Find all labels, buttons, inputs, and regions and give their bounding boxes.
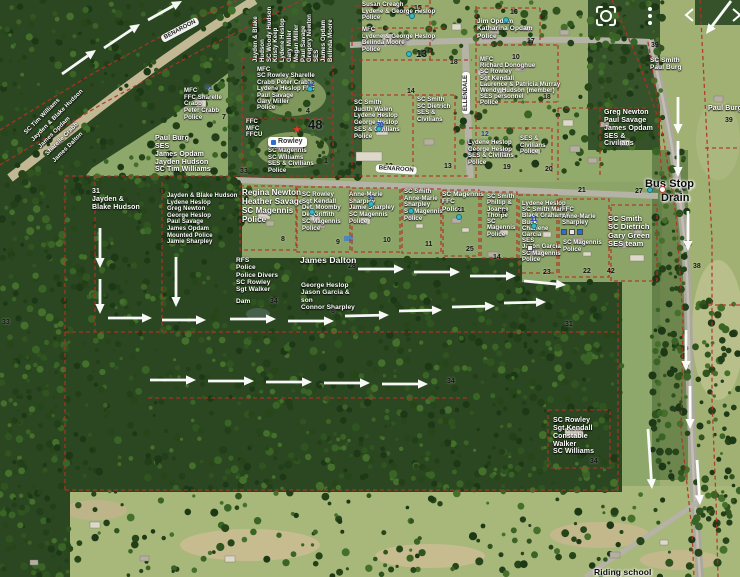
poi-dot (503, 17, 509, 23)
road-label: BENAROON (375, 164, 416, 175)
lot-number: 33 (240, 168, 248, 175)
map-label: Regina Newton Heather Savage SC Magennis… (242, 189, 303, 225)
lot-number: 39 (725, 117, 733, 124)
map-label: SC Smith Anne-Marie Sharpley SC Magennis… (404, 189, 443, 223)
lot-number: 28 (348, 263, 356, 270)
map-icon-square (577, 229, 583, 235)
road-label: BENAROON (160, 17, 200, 43)
poi-dot (408, 208, 414, 214)
lot-number: 12 (481, 131, 489, 138)
lot-number: 15 (414, 5, 422, 12)
lot-number: 48 (308, 117, 322, 132)
lot-number: 4 (306, 108, 310, 115)
map-label: Jayden & Blake Hudson SC Woody Hudson Kr… (253, 7, 335, 62)
lot-number: 39 (651, 42, 659, 49)
lot-number: 22 (583, 268, 591, 275)
map-label: SC Rowley Sgt Kendall Constable Walker S… (553, 417, 594, 456)
lot-number: 38 (693, 263, 701, 270)
map-screenshot[interactable]: SC Tim Williams Jayden & Blake Hudson Ja… (0, 0, 740, 577)
map-icon-square (569, 229, 575, 235)
highlight-chip: Rowley (268, 137, 307, 147)
map-label: SC Smith Judith Walen Lydene Heslop Geor… (354, 100, 400, 140)
poi-dot (307, 86, 313, 92)
road-label: ELLENDALE (462, 72, 470, 114)
lot-number: 1 (324, 158, 328, 165)
map-label: FFC MFC FFCU (246, 119, 262, 139)
star-marker: ★ (292, 125, 302, 136)
lot-number: 11 (425, 241, 432, 248)
map-label: SC Smith SC Dietrich Gary Green SES team (608, 215, 650, 249)
poi-dot (409, 13, 415, 19)
lot-number: 18 (450, 59, 458, 66)
map-label: Greg Newton Paul Savage James Opdam SES … (604, 109, 653, 148)
lot-number: 51 (205, 85, 213, 92)
more-options-icon[interactable] (642, 6, 658, 26)
bracket-left-icon[interactable] (684, 8, 696, 22)
lot-number: 34 (270, 298, 278, 305)
bus-stop-marker (659, 186, 666, 193)
lot-number: 27 (635, 188, 643, 195)
map-label: Jayden & Blake Hudson Lydene Heslop Greg… (167, 193, 237, 246)
poi-dot (376, 126, 382, 132)
lot-number: 21 (578, 187, 586, 194)
lot-number: 6 (331, 308, 335, 315)
map-label: Paul Burg SES James Opdam Jayden Hudson … (155, 135, 211, 174)
annotations-layer: SC Tim Williams Jayden & Blake Hudson Ja… (0, 0, 740, 577)
lot-number: 9 (336, 239, 340, 246)
lot-number: 18 (543, 94, 551, 101)
map-label: Lydene Heslop George Heslop SES & Civili… (468, 140, 514, 167)
lot-number: 13 (444, 163, 452, 170)
map-label: George Heslop Jason Garcia & son Connor … (301, 282, 355, 311)
poi-dot (368, 201, 374, 207)
lot-number: 17 (527, 38, 535, 45)
poi-dot (309, 209, 315, 215)
map-label: SC Smith SC Dietrich SES & Civilians (417, 97, 450, 124)
map-label: FFC Anne-Marie Sharpley (562, 207, 596, 227)
lot-number: 34 (590, 458, 598, 465)
lot-number: 19 (499, 209, 507, 216)
map-label: Dam (236, 298, 250, 305)
poi-dot (531, 223, 537, 229)
map-label: Drain (661, 192, 690, 204)
lot-number: 16 (510, 9, 518, 16)
lot-number: 20 (545, 166, 553, 173)
lot-number: 19 (503, 164, 511, 171)
lot-number: 10 (383, 237, 391, 244)
poi-dot (406, 51, 412, 57)
lot-number: 14 (493, 254, 501, 261)
map-icon-square (527, 245, 533, 251)
map-label: SC Smith Paul Burg (650, 57, 682, 72)
lot-number: 25 (466, 246, 474, 253)
map-label: SC Rowley Sgt Kendall Det. Moomby Det Gr… (302, 192, 341, 232)
lot-number: 31 (565, 321, 573, 328)
screenshot-lens-icon[interactable] (594, 4, 618, 28)
map-label: Susan Creagh Lydene & George Heslop Poli… (362, 2, 435, 22)
map-label: 31 Jayden & Blake Hudson (92, 188, 140, 212)
lot-number: 23 (543, 269, 551, 276)
lot-number: 21 (457, 207, 465, 214)
poi-dot (647, 187, 653, 193)
map-label: MFC FFC Sharelle Crabb Peter Crabb Polic… (184, 88, 222, 122)
map-label: SC Smith Phillip & Joanne Thorpe SC Mage… (487, 194, 515, 238)
map-label: SES & Civilians Police (520, 136, 546, 156)
lot-number: 42 (607, 268, 615, 275)
lot-number: 11 (530, 216, 537, 223)
map-label: SC Magennis Police (563, 240, 602, 253)
map-label: RFS Police Police Divers SC Rowley Sgt W… (236, 257, 278, 293)
map-label: Paul Burg (708, 105, 740, 113)
lot-number: 34 (447, 378, 455, 385)
map-icon-square (561, 229, 567, 235)
map-label: SC Magennis SC Williams SES & Civilians … (268, 148, 314, 175)
map-label: SC Tim Williams Jayden & Blake Hudson Ja… (22, 80, 107, 165)
map-label: Riding school (594, 568, 652, 577)
poi-dot (456, 214, 462, 220)
lot-number: 10 (512, 54, 520, 61)
lot-number: 33 (2, 319, 10, 326)
lot-number: 7 (222, 114, 226, 121)
lot-number: 8 (281, 236, 285, 243)
bracket-right-icon[interactable] (730, 8, 740, 22)
lot-number: 13 (416, 49, 427, 60)
lot-number: 14 (407, 88, 415, 95)
